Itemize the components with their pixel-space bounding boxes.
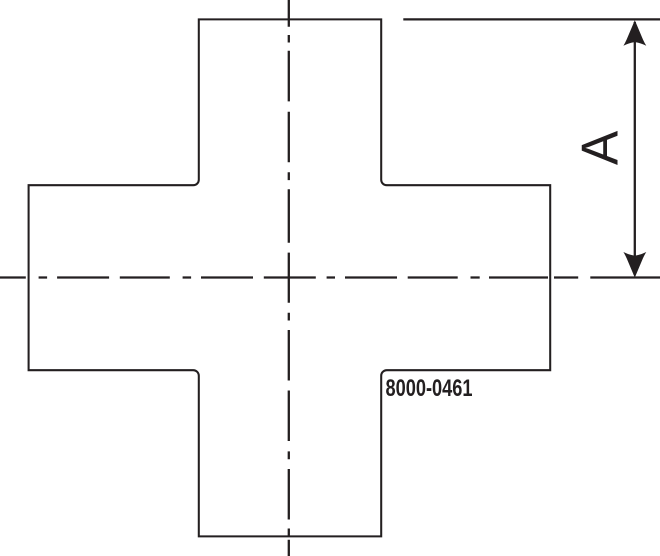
svg-text:8000-0461: 8000-0461 (386, 376, 473, 402)
svg-text:A: A (571, 130, 629, 165)
